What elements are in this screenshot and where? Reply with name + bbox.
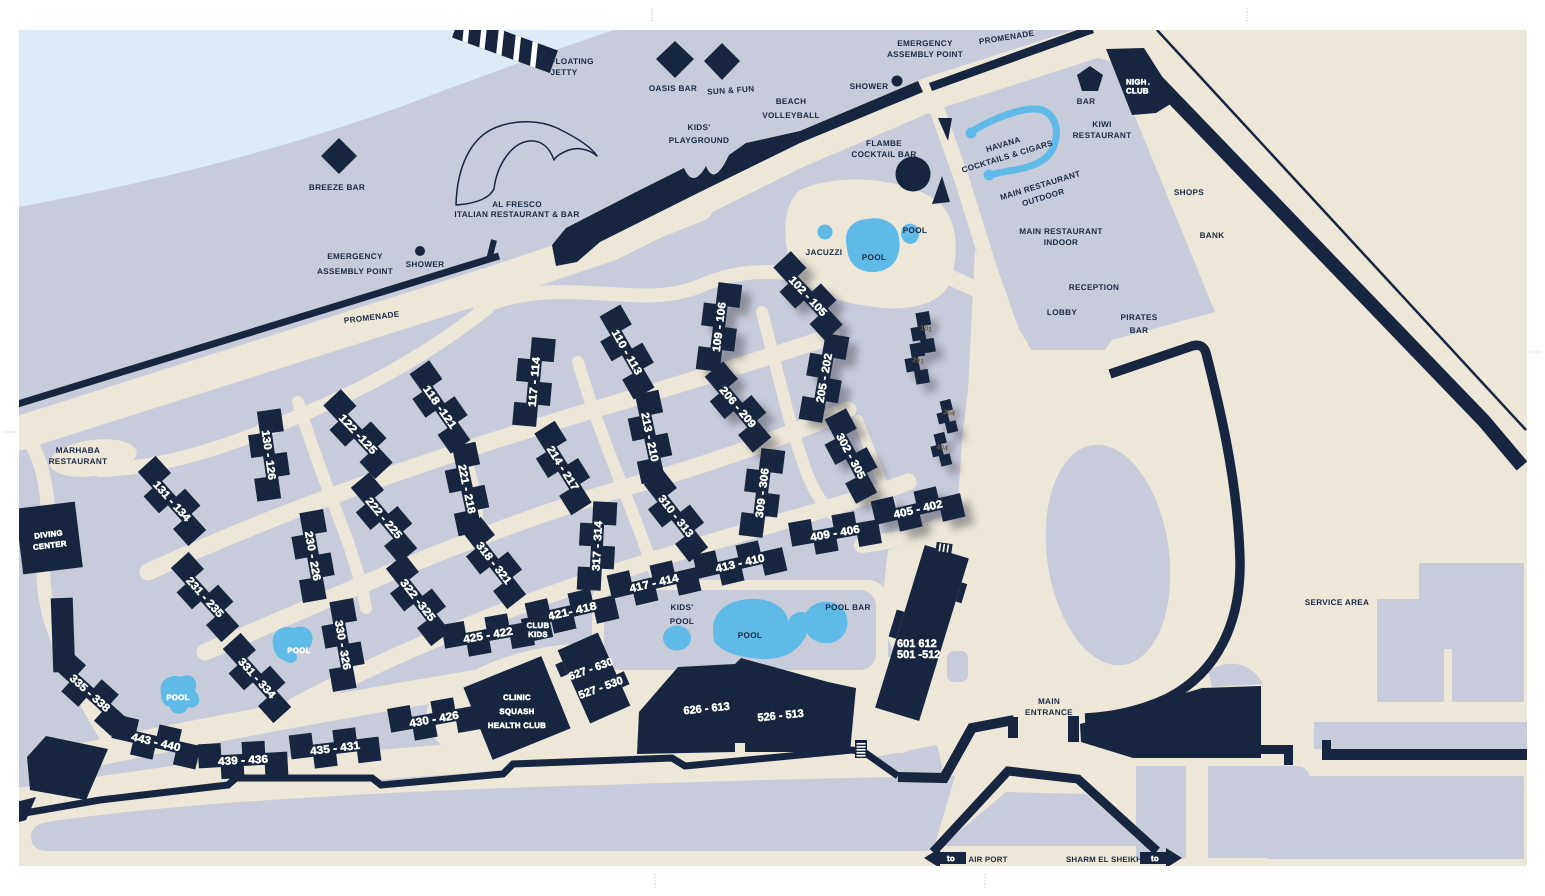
svg-text:RESTAURANT: RESTAURANT: [1073, 131, 1132, 140]
svg-text:ITALIAN RESTAURANT & BAR: ITALIAN RESTAURANT & BAR: [454, 210, 579, 219]
svg-text:SHOPS: SHOPS: [1174, 188, 1204, 197]
svg-text:ENTRANCE: ENTRANCE: [1025, 708, 1073, 717]
svg-text:to: to: [947, 854, 955, 863]
svg-text:POOL: POOL: [738, 631, 762, 640]
svg-text:PIRATES: PIRATES: [1121, 313, 1158, 322]
svg-text:CLINIC: CLINIC: [503, 693, 531, 702]
svg-text:MAIN RESTAURANT: MAIN RESTAURANT: [1019, 227, 1103, 236]
svg-text:SHARM EL SHEIKH: SHARM EL SHEIKH: [1066, 855, 1142, 864]
svg-text:OASIS BAR: OASIS BAR: [649, 84, 697, 93]
svg-text:CLUB: CLUB: [1126, 87, 1149, 96]
svg-text:POOL BAR: POOL BAR: [825, 603, 870, 612]
svg-text:COCKTAIL BAR: COCKTAIL BAR: [851, 150, 916, 159]
svg-text:AIR PORT: AIR PORT: [968, 855, 1007, 864]
svg-text:MARHABA: MARHABA: [56, 446, 100, 455]
svg-text:POOL: POOL: [287, 646, 310, 655]
svg-text:EMERGENCY: EMERGENCY: [897, 39, 953, 48]
svg-text:POOL: POOL: [670, 617, 694, 626]
svg-text:POOL: POOL: [903, 226, 927, 235]
svg-text:KIDS: KIDS: [528, 630, 548, 639]
svg-text:HEALTH CLUB: HEALTH CLUB: [488, 721, 546, 730]
svg-text:EMERGENCY: EMERGENCY: [327, 252, 383, 261]
svg-text:JACUZZI: JACUZZI: [806, 248, 843, 257]
svg-text:JETTY: JETTY: [551, 68, 578, 77]
svg-text:FLAMBE: FLAMBE: [866, 139, 902, 148]
svg-text:MAIN: MAIN: [1038, 697, 1060, 706]
svg-text:SHOWER: SHOWER: [406, 260, 445, 269]
svg-text:POOL: POOL: [862, 253, 886, 262]
svg-text:KIDS': KIDS': [687, 123, 710, 132]
svg-text:SQUASH: SQUASH: [499, 707, 534, 716]
svg-text:FLOATING: FLOATING: [550, 57, 594, 66]
svg-text:BREEZE BAR: BREEZE BAR: [309, 183, 365, 192]
svg-text:KIWI: KIWI: [1092, 120, 1111, 129]
svg-text:ASSEMBLY POINT: ASSEMBLY POINT: [887, 50, 963, 59]
svg-text:BEACH: BEACH: [776, 97, 807, 106]
svg-text:AL FRESCO: AL FRESCO: [492, 200, 542, 209]
svg-text:PLAYGROUND: PLAYGROUND: [669, 136, 729, 145]
svg-text:501 -512: 501 -512: [897, 649, 940, 661]
svg-text:BANK: BANK: [1200, 231, 1225, 240]
svg-text:to: to: [1151, 854, 1159, 863]
svg-text:LOBBY: LOBBY: [1047, 308, 1077, 317]
svg-text:VOLLEYBALL: VOLLEYBALL: [762, 111, 820, 120]
svg-text:KIDS': KIDS': [670, 603, 693, 612]
svg-text:BAR: BAR: [1130, 326, 1149, 335]
svg-text:INDOOR: INDOOR: [1044, 238, 1079, 247]
svg-text:POOL: POOL: [166, 693, 189, 702]
svg-text:CLUB: CLUB: [527, 621, 550, 630]
svg-text:RESTAURANT: RESTAURANT: [49, 457, 108, 466]
svg-text:BAR: BAR: [1077, 97, 1096, 106]
svg-text:ASSEMBLY POINT: ASSEMBLY POINT: [317, 267, 393, 276]
svg-text:SHOWER: SHOWER: [850, 82, 889, 91]
svg-text:SERVICE AREA: SERVICE AREA: [1305, 598, 1370, 607]
svg-text:RECEPTION: RECEPTION: [1069, 283, 1119, 292]
